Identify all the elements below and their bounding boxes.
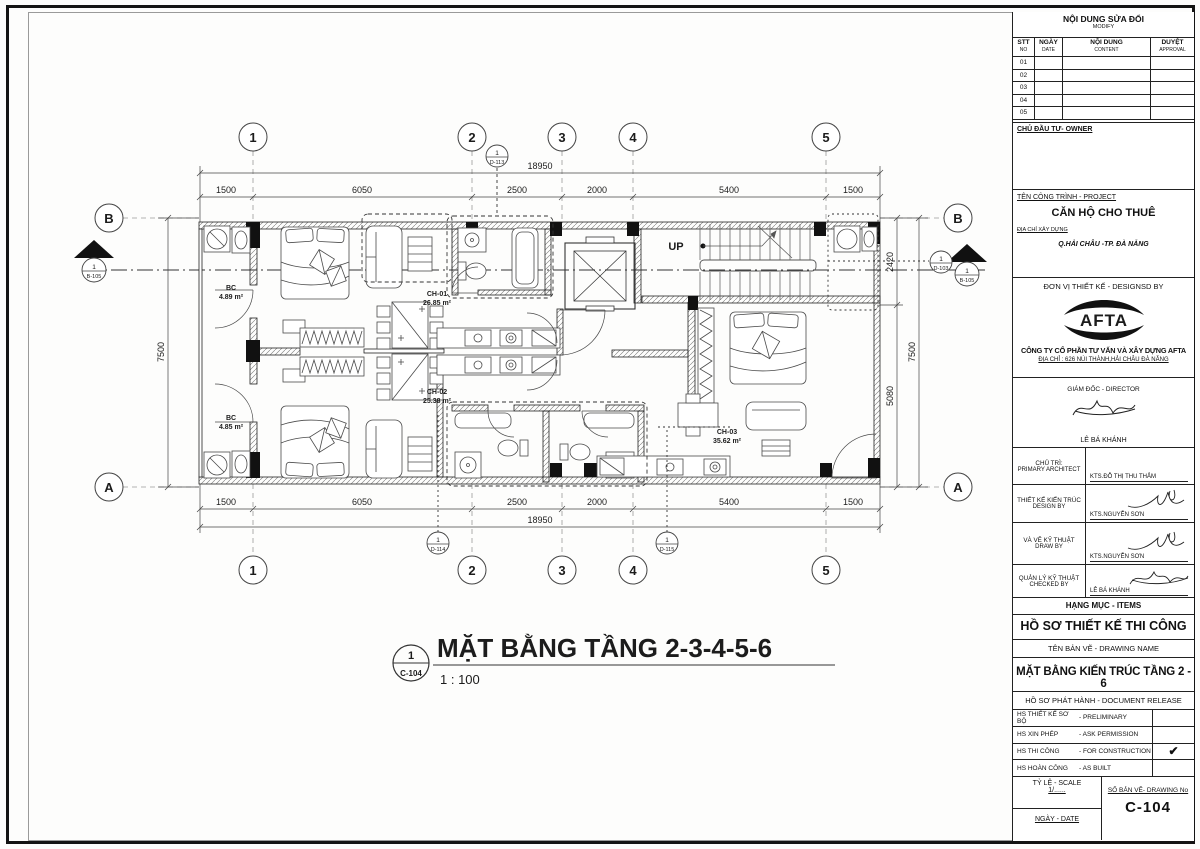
svg-text:1: 1	[965, 268, 969, 275]
callout-d115: 1 D-115	[656, 532, 678, 554]
project-section: TÊN CÔNG TRÌNH - PROJECT CĂN HỘ CHO THUÊ…	[1013, 190, 1194, 278]
callout-d113: 1 D-113	[486, 145, 508, 167]
revision-row-number: 03	[1013, 82, 1035, 95]
svg-text:4: 4	[629, 130, 637, 145]
drawing-name-label: TÊN BẢN VẼ - DRAWING NAME	[1013, 640, 1194, 658]
owner-label: CHỦ ĐẦU TƯ- OWNER	[1013, 123, 1194, 133]
svg-text:6050: 6050	[352, 497, 372, 507]
svg-text:5400: 5400	[719, 185, 739, 195]
svg-text:1: 1	[939, 256, 943, 263]
svg-text:1500: 1500	[216, 497, 236, 507]
svg-text:2: 2	[468, 563, 475, 578]
svg-text:C-104: C-104	[400, 669, 422, 678]
staff-row: THIẾT KẾ KIẾN TRÚCDESIGN BY KTS.NGUYỄN S…	[1013, 485, 1194, 523]
scale-label: TỶ LỆ - SCALE	[1013, 780, 1101, 787]
svg-text:35.62 m²: 35.62 m²	[713, 438, 742, 445]
svg-text:1: 1	[665, 537, 669, 544]
svg-text:5400: 5400	[719, 497, 739, 507]
svg-text:26.85 m²: 26.85 m²	[423, 300, 452, 307]
staff-name: KTS.ĐỖ THỊ THU THẮM	[1090, 474, 1188, 482]
section-marker-left: 1 B-105	[74, 240, 114, 282]
check-icon: ✔	[1168, 744, 1178, 758]
svg-text:6050: 6050	[352, 185, 372, 195]
bathroom-top	[458, 228, 538, 288]
staff-signature	[1126, 528, 1190, 556]
svg-text:18950: 18950	[527, 515, 552, 525]
svg-text:3: 3	[558, 563, 565, 578]
scale-value: 1/......	[1013, 787, 1101, 794]
drawing-no: C-104	[1102, 799, 1194, 816]
svg-text:CH-02: CH-02	[427, 389, 447, 396]
svg-text:D-103: D-103	[934, 266, 949, 272]
svg-text:25.38 m²: 25.38 m²	[423, 398, 452, 405]
svg-text:2000: 2000	[587, 185, 607, 195]
up-label: UP	[668, 241, 683, 253]
svg-text:1500: 1500	[843, 497, 863, 507]
svg-text:A: A	[953, 480, 963, 495]
afta-logo-text: AFTA	[1079, 311, 1127, 330]
director-name: LÊ BÁ KHÁNH	[1013, 437, 1194, 444]
stairs	[700, 224, 816, 300]
svg-text:D-115: D-115	[660, 547, 675, 553]
revision-table: NỘI DUNG SỬA ĐỔI MODIFY STTNO NGÀYDATE N…	[1013, 12, 1194, 123]
title-block: NỘI DUNG SỬA ĐỔI MODIFY STTNO NGÀYDATE N…	[1012, 12, 1194, 841]
staff-row: QUẢN LÝ KỸ THUẬTCHECKED BY LÊ BÁ KHÁNH	[1013, 565, 1194, 598]
drawing-name: MẶT BẰNG KIẾN TRÚC TẦNG 2 - 6	[1013, 658, 1194, 692]
company-name: CÔNG TY CỔ PHẦN TƯ VẤN VÀ XÂY DỰNG AFTA	[1013, 346, 1194, 355]
svg-text:CH-01: CH-01	[427, 291, 447, 298]
svg-text:4.85 m²: 4.85 m²	[219, 424, 244, 431]
release-table: HS THIẾT KẾ SƠ BỘ - PRELIMINARY HS XIN P…	[1013, 710, 1194, 777]
revision-subtitle: MODIFY	[1013, 24, 1194, 30]
svg-text:1: 1	[249, 563, 256, 578]
company-address: ĐỊA CHỈ : 626 NÚI THÀNH,HẢI CHÂU ĐÀ NẴNG	[1013, 357, 1194, 363]
revision-row-number: 01	[1013, 57, 1035, 70]
svg-text:4.89 m²: 4.89 m²	[219, 294, 244, 301]
svg-text:2: 2	[468, 130, 475, 145]
release-checkbox-checked: ✔	[1152, 744, 1194, 760]
revision-row-number: 02	[1013, 70, 1035, 83]
elevator	[565, 237, 635, 311]
drawing-sheet: 1500 6050 2500 2000 5400 1500 18950 1500…	[0, 0, 1200, 849]
svg-text:7500: 7500	[156, 342, 166, 362]
svg-text:B: B	[953, 211, 962, 226]
release-row: HS THI CÔNG - FOR CONSTRUCTION ✔	[1013, 744, 1194, 761]
svg-text:5: 5	[822, 130, 829, 145]
designer-label: ĐƠN VỊ THIẾT KẾ - DESIGNSD BY	[1013, 278, 1194, 291]
release-checkbox	[1152, 727, 1194, 743]
svg-text:5: 5	[822, 563, 829, 578]
svg-text:2500: 2500	[507, 185, 527, 195]
revision-row-number: 05	[1013, 107, 1035, 120]
revision-row-number: 04	[1013, 95, 1035, 108]
svg-text:3: 3	[558, 130, 565, 145]
furniture-ch02	[281, 354, 560, 478]
release-checkbox	[1152, 760, 1194, 776]
project-name: CĂN HỘ CHO THUÊ	[1013, 207, 1194, 219]
director-label: GIÁM ĐỐC - DIRECTOR	[1013, 378, 1194, 393]
svg-text:1: 1	[92, 264, 96, 271]
release-label: HỒ SƠ PHÁT HÀNH - DOCUMENT RELEASE	[1013, 692, 1194, 710]
svg-text:BC: BC	[226, 415, 236, 422]
callout-d114: 1 D-114	[427, 532, 449, 554]
svg-text:1500: 1500	[843, 185, 863, 195]
svg-text:18950: 18950	[527, 161, 552, 171]
svg-text:5080: 5080	[885, 386, 895, 406]
release-row: HS XIN PHÉP - ASK PERMISSION	[1013, 727, 1194, 744]
floor-plan: 1500 6050 2500 2000 5400 1500 18950 1500…	[0, 0, 1012, 849]
svg-text:1 : 100: 1 : 100	[440, 672, 480, 687]
svg-text:B-105: B-105	[87, 274, 102, 280]
revision-title: NỘI DUNG SỬA ĐỔI	[1013, 14, 1194, 24]
svg-text:7500: 7500	[907, 342, 917, 362]
svg-text:2420: 2420	[885, 252, 895, 272]
svg-text:D-113: D-113	[490, 160, 505, 166]
svg-text:2500: 2500	[507, 497, 527, 507]
col-approval: DUYỆT	[1151, 39, 1194, 47]
svg-text:A: A	[104, 480, 114, 495]
staff-name: KTS.NGUYỄN SƠN	[1090, 512, 1188, 520]
svg-text:1: 1	[408, 650, 414, 662]
release-row: HS THIẾT KẾ SƠ BỘ - PRELIMINARY	[1013, 710, 1194, 727]
svg-text:BC: BC	[226, 285, 236, 292]
project-address: Q.HẢI CHÂU -TP. ĐÀ NẴNG	[1013, 241, 1194, 248]
project-label: TÊN CÔNG TRÌNH - PROJECT	[1013, 190, 1194, 201]
svg-text:1500: 1500	[216, 185, 236, 195]
svg-text:2000: 2000	[587, 497, 607, 507]
director-signature	[1069, 395, 1139, 421]
svg-text:B: B	[104, 211, 113, 226]
staff-name: KTS.NGUYỄN SƠN	[1090, 554, 1188, 562]
col-date: NGÀY	[1035, 39, 1062, 47]
drawing-no-label: SỐ BẢN VẼ- DRAWING No	[1102, 787, 1194, 794]
plan-title: 1 C-104 MẶT BẰNG TẦNG 2-3-4-5-6 1 : 100	[393, 633, 835, 687]
svg-text:B-105: B-105	[960, 278, 975, 284]
owner-section: CHỦ ĐẦU TƯ- OWNER	[1013, 123, 1194, 190]
sheet-info: TỶ LỆ - SCALE 1/...... NGÀY - DATE SỐ BẢ…	[1013, 777, 1194, 840]
col-stt: STT	[1013, 39, 1034, 47]
items-value: HỒ SƠ THIẾT KẾ THI CÔNG	[1013, 615, 1194, 640]
staff-signature	[1126, 568, 1190, 590]
svg-text:D-114: D-114	[431, 547, 446, 553]
svg-text:1: 1	[495, 150, 499, 157]
svg-text:MẶT BẰNG TẦNG 2-3-4-5-6: MẶT BẰNG TẦNG 2-3-4-5-6	[437, 633, 772, 663]
afta-logo: AFTA	[1059, 293, 1149, 345]
release-row: HS HOÀN CÔNG - AS BUILT	[1013, 760, 1194, 777]
release-checkbox	[1152, 710, 1194, 726]
svg-text:4: 4	[629, 563, 637, 578]
svg-text:1: 1	[249, 130, 256, 145]
staff-name: LÊ BÁ KHÁNH	[1090, 588, 1188, 596]
staff-row: VÀ VẼ KỸ THUẬTDRAW BY KTS.NGUYỄN SƠN	[1013, 523, 1194, 565]
director-section: GIÁM ĐỐC - DIRECTOR LÊ BÁ KHÁNH	[1013, 378, 1194, 448]
staff-row: CHỦ TRÌ:PRIMARY ARCHITECT KTS.ĐỖ THỊ THU…	[1013, 448, 1194, 485]
svg-text:1: 1	[436, 537, 440, 544]
project-address-label: ĐỊA CHỈ XÂY DỰNG	[1013, 219, 1194, 233]
staff-signature	[1126, 488, 1190, 514]
items-label: HẠNG MỤC - ITEMS	[1013, 598, 1194, 615]
date-label: NGÀY - DATE	[1013, 816, 1101, 823]
staff-table: CHỦ TRÌ:PRIMARY ARCHITECT KTS.ĐỖ THỊ THU…	[1013, 448, 1194, 598]
callout-d103: 1 D-103	[930, 251, 952, 273]
col-content: NỘI DUNG	[1063, 39, 1150, 47]
designer-section: ĐƠN VỊ THIẾT KẾ - DESIGNSD BY AFTA CÔNG …	[1013, 278, 1194, 378]
svg-text:CH-03: CH-03	[717, 429, 737, 436]
section-marker-right: 1 B-105	[947, 244, 987, 286]
